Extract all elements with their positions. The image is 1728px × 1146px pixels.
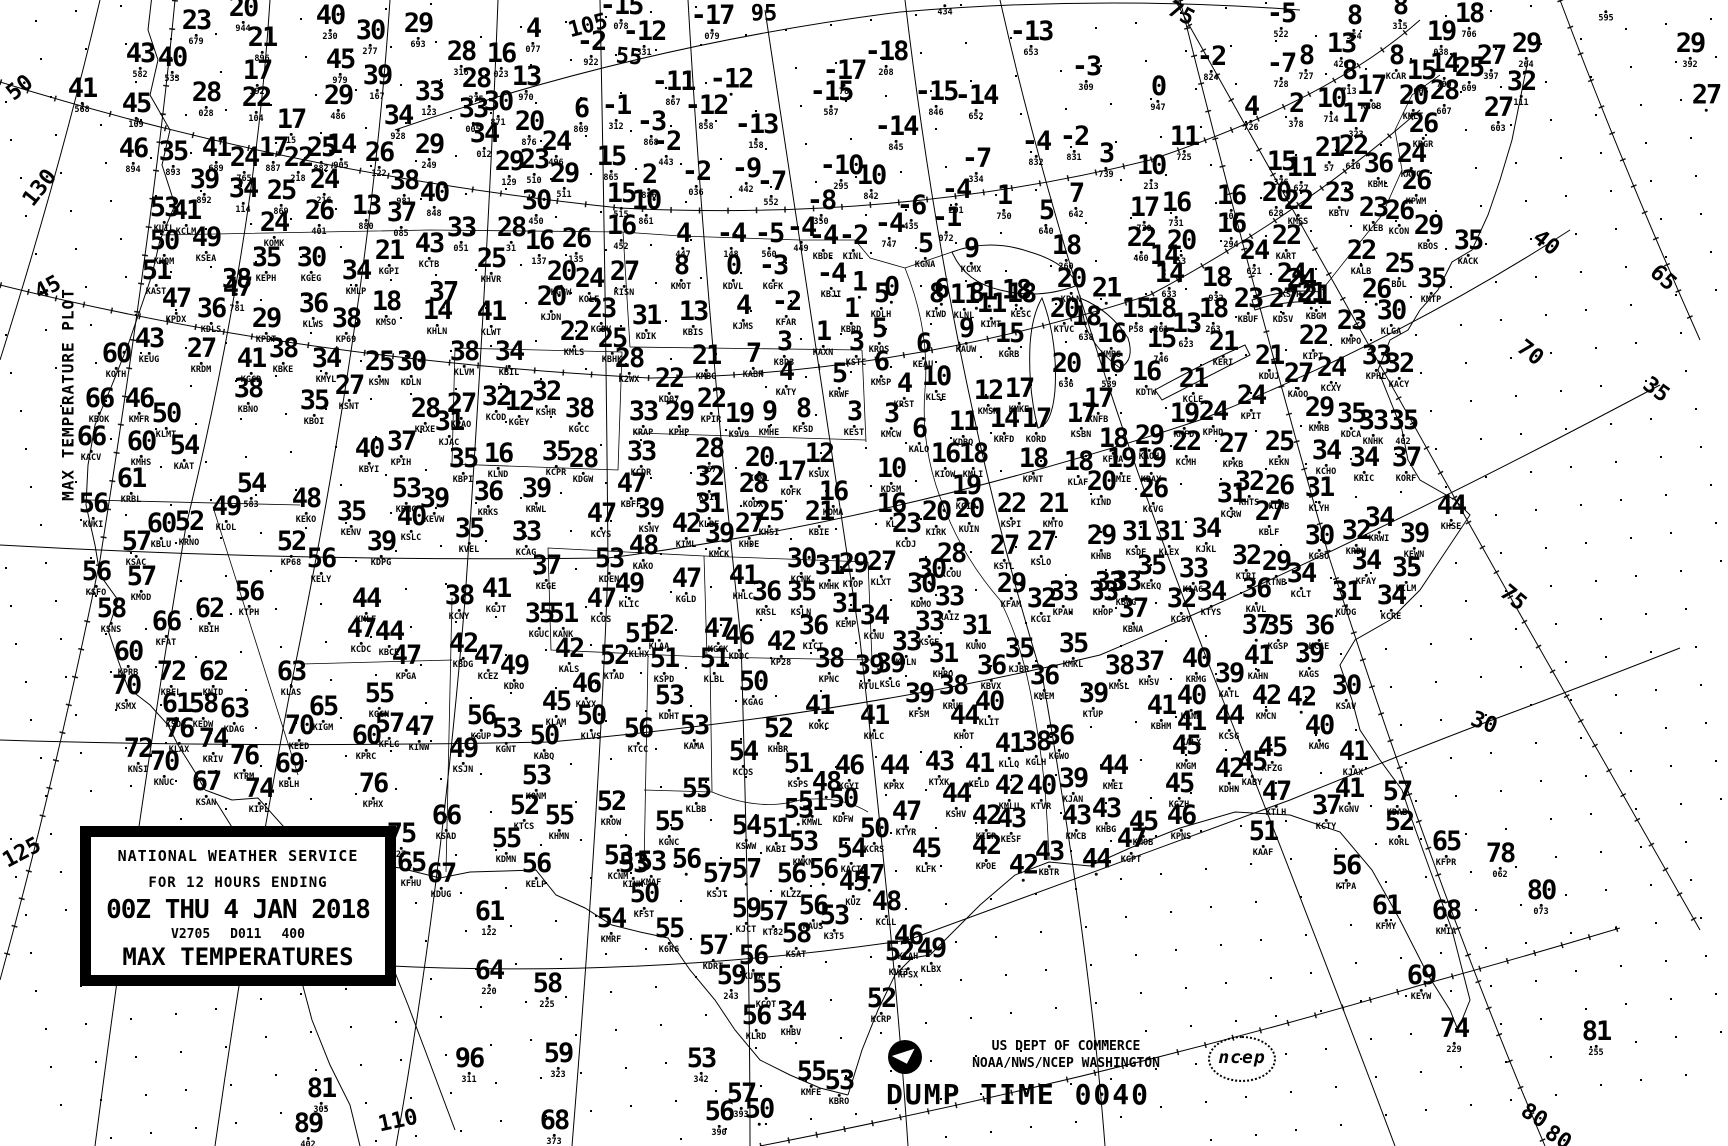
station-plot: 57KSJT [703, 860, 732, 900]
station-temp: 47 [162, 285, 191, 312]
station-temp: 39 [1295, 640, 1324, 667]
station-plot: 22KSPI [997, 490, 1026, 529]
station-id: KLLQ [995, 761, 1024, 770]
station-id: KSMX [112, 703, 141, 712]
station-temp: 39 [1400, 520, 1429, 547]
station-temp: 27 [1269, 285, 1298, 312]
station-temp: 14 [327, 131, 356, 158]
station-temp: 37 [387, 199, 416, 226]
station-temp: 27 [1027, 528, 1056, 555]
station-temp: 56 [809, 856, 838, 883]
station-id: 158 [735, 142, 778, 151]
station-temp: 42 [1215, 755, 1244, 782]
station-id: KAAT [170, 463, 199, 472]
station-temp: 23 [182, 7, 211, 34]
station-plot: 60KOTH [102, 340, 131, 380]
station-id: KUKI [79, 521, 108, 530]
station-id: 036 [682, 189, 711, 198]
station-temp: 39 [1215, 660, 1244, 687]
station-plot: 33KRAP [629, 398, 658, 438]
station-temp: 25 [1455, 54, 1484, 81]
station-plot: 40KBYI [355, 435, 384, 475]
station-temp: 36 [197, 295, 226, 322]
station-temp: 5 [829, 360, 849, 387]
station-temp: 35 [787, 578, 816, 605]
station-id: KEST [844, 429, 864, 438]
station-temp: 35 [1389, 407, 1418, 434]
station-id: KACY [1385, 381, 1414, 390]
station-plot: 32KACY [1385, 350, 1414, 390]
station-temp: 51 [1249, 818, 1278, 845]
station-temp: 30 [484, 88, 513, 115]
station-plot: -4832 [1022, 128, 1051, 168]
station-id: KMCB [1062, 833, 1091, 842]
station-plot: 38KGCC [565, 395, 594, 435]
station-temp: 26 [1139, 475, 1168, 502]
station-temp: 33 [627, 438, 656, 465]
station-plot: 3KMCW [881, 400, 901, 440]
station-temp: 25 [365, 348, 394, 375]
station-plot: 434 [937, 4, 952, 17]
station-temp: 14 [423, 297, 452, 324]
station-temp: 49 [615, 570, 644, 597]
station-temp: 33 [1112, 568, 1141, 595]
station-temp: 5 [1038, 197, 1053, 224]
station-plot: 24621 [1240, 237, 1269, 277]
station-id: KMSP [871, 379, 891, 388]
station-temp: -17 [823, 57, 866, 84]
station-temp: 46 [1167, 802, 1196, 829]
station-temp: 45 [326, 46, 355, 73]
station-temp: 20 [515, 108, 544, 135]
station-plot: 33051 [447, 214, 476, 254]
station-plot: -15846 [915, 78, 958, 118]
station-plot: 47KPDX [162, 285, 191, 325]
station-temp: 41 [482, 575, 511, 602]
station-temp: 44 [1215, 702, 1244, 729]
station-temp: 24 [1317, 354, 1346, 381]
station-temp: 27 [1484, 94, 1513, 121]
station-plot: 41KLWT [477, 298, 506, 338]
station-plot: 23KCDJ [892, 510, 921, 549]
station-plot: 31KDIK [632, 302, 661, 342]
station-temp: 67 [192, 768, 221, 795]
station-plot: 46KMFR [125, 385, 154, 425]
station-id: KSWW [732, 843, 761, 852]
station-temp: 40 [397, 503, 426, 530]
station-id: KEKQ [1137, 583, 1166, 592]
station-id: KLWS [299, 321, 328, 330]
station-temp: 40 [1177, 682, 1206, 709]
station-id: KLIC [615, 601, 644, 610]
station-plot: 40KRMG [1182, 645, 1211, 685]
station-temp: 52 [764, 715, 793, 742]
station-temp: 8 [1386, 42, 1406, 69]
station-id: KLVS [577, 733, 606, 742]
legend-d: D011 [230, 927, 261, 942]
station-id: KHBV [777, 1029, 806, 1038]
station-plot: 65KFHU [397, 849, 426, 889]
station-temp: 15 [995, 320, 1024, 347]
station-id: KSMN [365, 379, 394, 388]
station-temp: 55 [492, 825, 521, 852]
station-temp: 41 [1339, 738, 1368, 765]
station-temp: 41 [860, 702, 889, 729]
station-temp: 28 [497, 214, 526, 241]
station-plot: 39KATL [1215, 660, 1244, 700]
station-plot: 30450 [522, 187, 551, 227]
station-plot: 39KTUP [1079, 680, 1108, 720]
station-plot: 34114 [229, 175, 258, 215]
station-temp: 58 [97, 595, 126, 622]
station-temp: 30 [1305, 522, 1334, 549]
station-plot: 78062 [1486, 840, 1515, 880]
station-id: KGPT [1117, 856, 1146, 865]
station-temp: 32 [1507, 68, 1536, 95]
station-plot: 37KHSV [1135, 648, 1164, 688]
station-id: 077 [525, 46, 540, 55]
station-temp: 39 [905, 680, 934, 707]
station-temp: 42 [1009, 852, 1038, 879]
station-temp: 70 [112, 672, 141, 699]
station-id: KBRO [825, 1098, 854, 1107]
station-id: KDRO [500, 683, 529, 692]
station-id: KDIK [632, 333, 661, 342]
station-temp: 49 [192, 224, 221, 251]
station-plot: 31KUNO [962, 612, 991, 652]
station-plot: 26401 [305, 197, 334, 237]
station-temp: 51 [700, 645, 729, 672]
station-plot: 48KEKO [292, 485, 321, 524]
station-id: 072 [932, 235, 961, 244]
station-id: 846 [915, 109, 958, 118]
station-plot: 36KMEM [1030, 662, 1059, 702]
station-temp: 27 [1284, 360, 1313, 387]
station-plot: 14KRFD [990, 405, 1019, 445]
station-plot: 49KSEA [192, 224, 221, 264]
station-temp: 20 [1087, 468, 1116, 495]
station-id: KMFR [125, 416, 154, 425]
station-id: KLBX [917, 966, 946, 975]
station-plot: 39KRWL [522, 475, 551, 514]
station-id: KORF [1392, 475, 1421, 484]
station-temp: 21 [1179, 365, 1208, 392]
station-temp: 23 [892, 510, 921, 537]
station-temp: -12 [685, 92, 728, 119]
station-id: KBOS [1414, 243, 1443, 252]
station-temp: 53 [655, 682, 684, 709]
station-temp: 64 [475, 957, 504, 984]
station-id: 114 [229, 206, 258, 215]
station-temp: 38 [815, 645, 844, 672]
station-plot: 47KCDC [347, 615, 376, 655]
station-id: KIND [1087, 499, 1116, 508]
station-temp: 28 [615, 345, 644, 372]
station-plot: 18706 [1455, 0, 1484, 39]
station-temp: 47 [1262, 778, 1291, 805]
station-plot: 27KHDE [735, 510, 764, 549]
station-id: KHLN [423, 328, 452, 337]
station-plot: 35KACK [1454, 227, 1483, 267]
station-plot: 27KSLO [1027, 528, 1056, 568]
station-plot: 55K6R6 [655, 915, 684, 955]
station-plot: 1KAXN [813, 318, 833, 358]
station-temp: 27 [187, 335, 216, 362]
station-id: KSPI [997, 521, 1026, 530]
station-temp: 20 [537, 283, 566, 310]
station-temp: 33 [415, 78, 444, 105]
station-id: KSLC [397, 534, 426, 543]
station-plot: 66KSAD [432, 802, 461, 842]
station-plot: 13623 [1172, 310, 1201, 350]
station-temp: 76 [165, 715, 194, 742]
station-id: KALO [909, 446, 929, 455]
station-id: KMEM [1030, 693, 1059, 702]
station-temp: 4 [894, 370, 914, 397]
station-id: KINW [405, 744, 434, 753]
station-temp: 34 [1192, 515, 1221, 542]
station-id: KAUW [956, 346, 976, 355]
station-temp: 31 [962, 612, 991, 639]
station-temp: 47 [587, 585, 616, 612]
station-id: 861 [632, 218, 661, 227]
station-id: 522 [1267, 31, 1296, 40]
station-id: 582 [126, 71, 155, 80]
station-plot: 69KEYW [1407, 962, 1436, 1002]
station-temp: 15 [1147, 325, 1176, 352]
station-plot: 46KDDC [725, 622, 754, 662]
station-id: KPIR [697, 416, 726, 425]
station-temp: 27 [990, 532, 1019, 559]
station-id: KSHV [942, 811, 971, 820]
station-temp: 39 [522, 475, 551, 502]
station-temp: 24 [230, 144, 259, 171]
station-temp: 43 [415, 230, 444, 257]
station-plot: 10861 [632, 187, 661, 227]
station-temp: 57 [732, 856, 761, 883]
station-id: KCDS [729, 769, 758, 778]
station-id: 315 [1392, 23, 1407, 32]
station-temp: -1 [602, 92, 631, 119]
station-temp: 70 [150, 748, 179, 775]
station-temp: 42 [555, 635, 584, 662]
station-temp: 57 [699, 932, 728, 959]
station-plot: 43KBTR [1035, 838, 1064, 878]
station-plot: -2831 [1060, 123, 1089, 163]
station-id: 079 [691, 33, 734, 42]
station-id: KMFE [797, 1089, 826, 1098]
station-temp: 62 [195, 595, 224, 622]
station-id: 706 [1455, 31, 1484, 40]
station-plot: 8KIWD [926, 280, 946, 320]
station-id: KENV [337, 529, 366, 538]
station-plot: 25KEKN [1265, 428, 1294, 468]
station-temp: 26 [1385, 197, 1414, 224]
station-plot: 37KORF [1392, 444, 1421, 484]
station-id: KSAV [1332, 703, 1361, 712]
station-temp: -2 [1197, 43, 1226, 70]
station-temp: 63 [277, 658, 306, 685]
station-temp: 55 [365, 680, 394, 707]
station-temp: 47 [474, 642, 503, 669]
station-temp: 54 [237, 470, 266, 497]
station-temp: 40 [316, 2, 345, 29]
station-plot: 16KLND [484, 440, 513, 480]
station-plot: 3739 [1098, 140, 1113, 180]
station-plot: 70KNUC [150, 748, 179, 788]
station-id: KGRB [995, 351, 1024, 360]
station-plot: 20636 [1052, 350, 1081, 390]
station-id: 747 [875, 241, 904, 250]
station-id: 587 [810, 109, 853, 118]
station-temp: 24 [1240, 237, 1269, 264]
station-temp: -2 [1060, 123, 1089, 150]
station-temp: 34 [342, 257, 371, 284]
station-id: 642 [1068, 211, 1083, 220]
station-id: KAAF [1249, 849, 1278, 858]
station-temp: 22 [1172, 428, 1201, 455]
station-plot: 42KMCN [1252, 682, 1281, 722]
station-plot: 36KRSL [752, 578, 781, 618]
station-plot: 35KCPR [542, 438, 571, 478]
station-plot: -2KFAR [772, 288, 801, 328]
station-temp: 59 [544, 1040, 573, 1067]
station-temp: 40 [158, 44, 187, 71]
station-temp: 32 [532, 378, 561, 405]
station-id: KHMN [545, 833, 574, 842]
station-temp: 3 [844, 398, 864, 425]
station-plot: 41KJAX [1339, 738, 1368, 778]
station-temp: 22 [1272, 222, 1301, 249]
station-id: KHDE [735, 541, 764, 550]
station-id: 78 [823, 88, 866, 97]
station-plot: 36KBML [1364, 150, 1393, 190]
station-plot: 40848 [420, 179, 449, 219]
station-plot: 51KSPD [650, 645, 679, 685]
station-temp: 76 [230, 742, 259, 769]
station-plot: 47 [855, 862, 884, 893]
station-temp: 34 [312, 345, 341, 372]
station-temp: -4 [875, 210, 904, 237]
station-plot: 26KCON [1385, 197, 1414, 237]
station-plot: 39KFSM [905, 680, 934, 720]
station-temp: 50 [152, 400, 181, 427]
station-id: KLBB [682, 806, 711, 815]
station-plot: 61KRBL [117, 465, 146, 505]
station-id: KCDC [347, 646, 376, 655]
station-temp: 11 [950, 281, 979, 308]
station-plot: 59KJCT [732, 895, 761, 935]
station-plot: -4KBDE [809, 222, 838, 262]
station-temp: 42 [672, 510, 701, 537]
station-temp: 11 [949, 408, 978, 435]
station-plot: 89402 [294, 1110, 323, 1146]
station-temp: 47 [392, 642, 421, 669]
station-temp: 51 [142, 257, 171, 284]
station-id: KPOE [972, 863, 1001, 872]
station-temp: 33 [447, 214, 476, 241]
station-temp: 47 [1117, 825, 1146, 852]
station-temp: 21 [692, 342, 721, 369]
station-temp: 67 [427, 860, 456, 887]
station-plot: 5KRWF [829, 360, 849, 400]
station-plot: 72KNSI [124, 735, 153, 775]
station-plot: 50 [745, 1096, 774, 1127]
station-id: 123 [415, 109, 444, 118]
station-temp: 5 [869, 315, 889, 342]
station-plot: 56KTPH [235, 578, 264, 618]
station-plot: 67KSAN [192, 768, 221, 808]
station-temp: 47 [587, 500, 616, 527]
station-temp: 29 [665, 398, 694, 425]
station-plot: 27KISN [610, 258, 639, 298]
station-plot: 37085 [387, 199, 416, 239]
station-plot: 13970 [512, 63, 541, 103]
station-temp: 11 [977, 290, 1006, 317]
weather-map: 2367920944402303027729693435824053321896… [0, 0, 1728, 1146]
station-id: KRWL [522, 506, 551, 514]
station-temp: 35 [1264, 612, 1293, 639]
station-temp: 52 [597, 788, 626, 815]
station-temp: 45 [912, 835, 941, 862]
station-temp: 30 [1377, 297, 1406, 324]
station-plot: 33KNHK [1359, 407, 1388, 447]
station-temp: 74 [1440, 1015, 1469, 1042]
station-temp: 46 [125, 385, 154, 412]
station-temp: 50 [829, 785, 858, 812]
station-plot: 12KSUX [805, 440, 834, 480]
station-id: 342 [687, 1076, 716, 1085]
station-plot: 28K2WX [615, 345, 644, 385]
station-id: KCMH [1172, 459, 1201, 468]
station-id: 552 [757, 199, 786, 208]
station-temp: 35 [300, 387, 329, 414]
station-temp: 34 [1312, 437, 1341, 464]
station-id: KPRX [880, 783, 909, 792]
station-id: KDFW [829, 816, 858, 825]
station-plot: 43KCTB [415, 230, 444, 270]
station-plot: 80073 [1527, 877, 1556, 917]
station-temp: 16 [607, 212, 636, 239]
station-temp: -2 [577, 28, 606, 55]
station-plot: 44KSHV [942, 780, 971, 820]
station-id: KCVG [1139, 506, 1168, 514]
station-temp: 53 [492, 715, 521, 742]
station-id: KP28 [767, 659, 796, 668]
station-plot: 54583 [237, 470, 266, 510]
station-temp: 51 [762, 815, 791, 842]
station-plot: 40KAMG [1305, 712, 1334, 752]
station-id: 229 [1440, 1046, 1469, 1055]
station-plot: 54KAAT [170, 432, 199, 472]
station-plot: 41KGJT [482, 575, 511, 615]
station-id: 922 [577, 59, 606, 68]
station-plot: 74KIPL [245, 775, 274, 815]
station-temp: 43 [1092, 795, 1121, 822]
station-temp: 69 [1407, 962, 1436, 989]
station-plot: 35KMTP [1417, 265, 1446, 305]
station-plot: 30KGSO [1305, 522, 1334, 562]
station-temp: 37 [1119, 595, 1148, 622]
station-plot: 35KENV [337, 498, 366, 537]
station-temp: 36 [752, 578, 781, 605]
station-plot: 44 [1082, 846, 1111, 877]
station-id: KCLL [872, 919, 901, 928]
station-temp: 60 [147, 510, 176, 537]
station-temp: 20 [955, 495, 984, 522]
station-plot: 51KLBL [700, 645, 729, 685]
station-id: KMEI [1099, 783, 1128, 792]
